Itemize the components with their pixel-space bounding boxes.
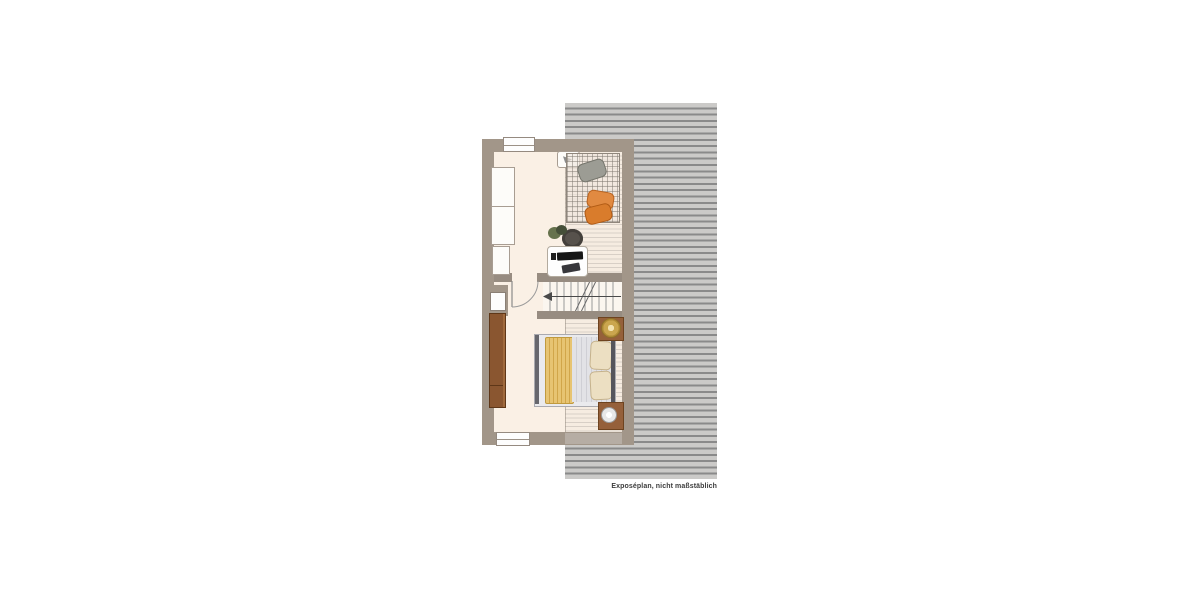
desk <box>547 246 588 277</box>
plan-caption: Exposéplan, nicht maßstäblich <box>517 482 717 492</box>
computer-monitor <box>557 251 583 260</box>
staircase <box>543 282 622 311</box>
wardrobe-edge <box>503 314 505 407</box>
window-glass-line <box>497 439 529 440</box>
desk-item <box>551 253 556 260</box>
floorplan-canvas: Exposéplan, nicht maßstäblich <box>0 0 1200 600</box>
duvet <box>545 337 574 404</box>
wardrobe <box>489 313 506 408</box>
wall-right <box>622 139 634 445</box>
double-bed <box>534 334 616 407</box>
window-bottom <box>496 432 530 446</box>
bed-headboard <box>611 335 615 404</box>
chimney-shaft <box>490 292 506 311</box>
pillow <box>589 340 612 370</box>
plant-leaf <box>556 225 567 235</box>
chimney-block <box>482 285 508 316</box>
table-lamp-white <box>601 407 617 423</box>
built-in-cupboard <box>491 167 515 245</box>
bed-footboard <box>535 335 539 404</box>
pillow <box>589 370 612 400</box>
window-top <box>503 137 535 152</box>
keyboard <box>561 262 580 273</box>
swing-door <box>509 278 543 312</box>
radiator <box>492 246 510 275</box>
window-glass-line <box>504 145 534 146</box>
wall-bottom-light-strip <box>565 433 622 444</box>
cupboard-divider <box>492 206 514 207</box>
table-lamp-gold <box>601 318 621 338</box>
door-arc <box>512 281 538 307</box>
